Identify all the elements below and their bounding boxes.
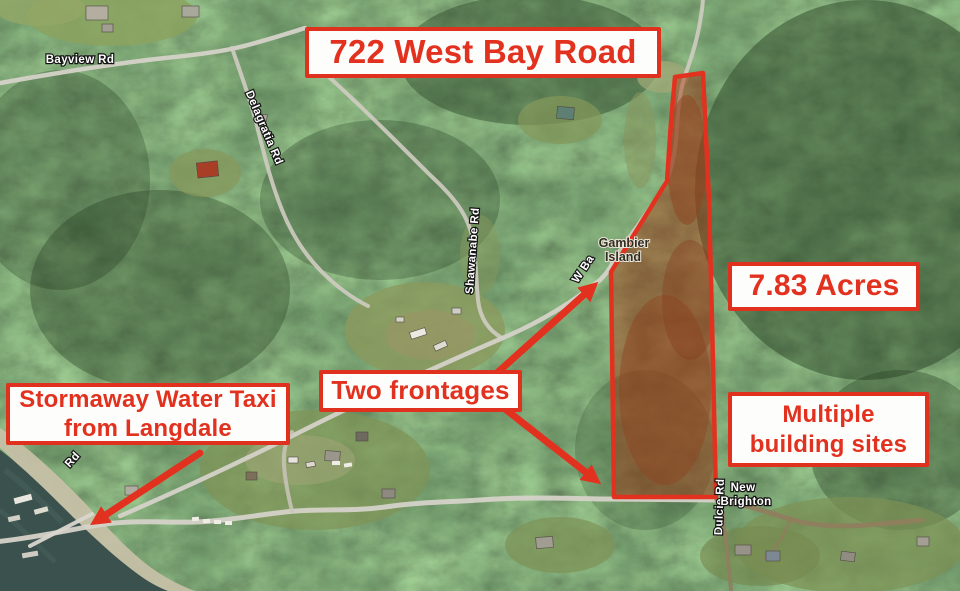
new-brighton-label-line1: New [731,482,756,494]
address-text: 722 West Bay Road [329,32,636,72]
gambier-island-label-line1: Gambier [599,236,650,250]
acreage-text: 7.83 Acres [748,268,899,305]
water-taxi-callout: Stormaway Water Taxi from Langdale [6,383,290,445]
building-sites-line1: Multiple [782,400,874,429]
water-taxi-line2: from Langdale [64,414,232,443]
building-sites-line2: building sites [750,430,907,459]
building-sites-callout: Multiple building sites [728,392,929,467]
new-brighton-label-line2: Brighton [720,496,771,508]
frontages-text: Two frontages [331,375,509,407]
frontages-callout: Two frontages [319,370,522,412]
acreage-callout: 7.83 Acres [728,262,920,311]
gambier-island-label-line2: Island [605,250,641,264]
aerial-map: Bayview Rd Delagratia Rd Shawanabe Rd Ga… [0,0,960,591]
water-taxi-line1: Stormaway Water Taxi [19,385,276,414]
address-callout: 722 West Bay Road [305,27,661,78]
bayview-rd-label: Bayview Rd [46,54,115,66]
